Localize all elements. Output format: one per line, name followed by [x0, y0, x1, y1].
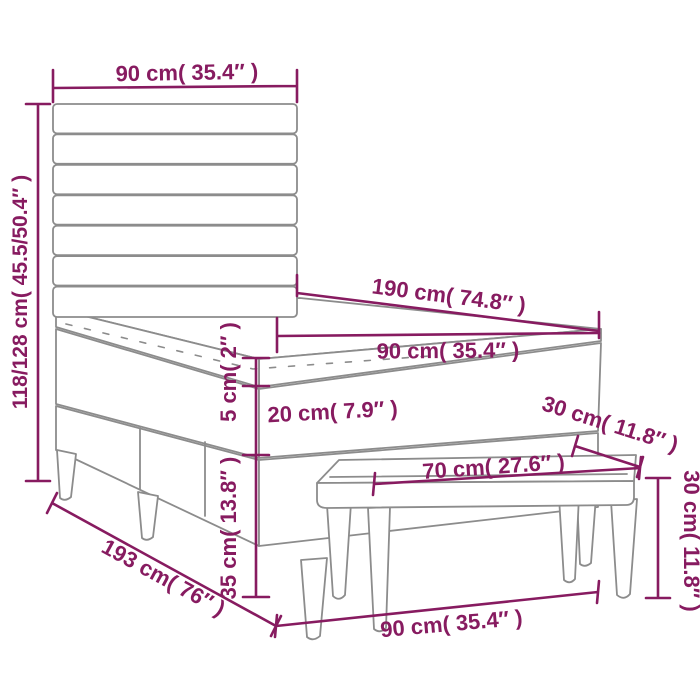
headboard-slat: [53, 165, 297, 194]
headboard: [53, 104, 297, 317]
bed-width-label: 90 cm( 35.4″ ): [379, 605, 523, 642]
topper-height-label: 5 cm( 2″ ): [216, 322, 241, 422]
bed-leg-mid-left: [138, 492, 158, 540]
headboard-width-label: 90 cm( 35.4″ ): [115, 59, 258, 86]
headboard-slat: [53, 134, 297, 163]
bed-leg-front: [301, 558, 327, 639]
headboard-slat: [53, 226, 297, 255]
bench-height-label: 30 cm( 11.8″ ): [679, 470, 700, 611]
dim-line-bench-height: [646, 478, 670, 598]
bench-seat-front: [317, 481, 634, 508]
headboard-slat: [53, 195, 297, 224]
bed-dimensions-diagram: 90 cm( 35.4″ ) 118/128 cm( 45.5/50.4″ ) …: [0, 0, 700, 700]
bench-leg-back-right: [559, 496, 579, 582]
bed-leg-right: [577, 496, 596, 566]
headboard-slat: [53, 104, 297, 133]
headboard-slat: [53, 256, 297, 285]
total-height-label: 118/128 cm( 45.5/50.4″ ): [9, 175, 32, 409]
mattress-width-label: 90 cm( 35.4″ ): [377, 337, 520, 363]
diagram-svg: 90 cm( 35.4″ ) 118/128 cm( 45.5/50.4″ ) …: [0, 0, 700, 700]
bed-total-length-label: 193 cm( 76″ ): [98, 534, 230, 621]
bench-leg-front-left: [327, 503, 351, 599]
bench-leg-back-left: [368, 507, 390, 631]
bench-leg-front-right: [611, 499, 637, 598]
base-height-label: 35 cm( 13.8″ ): [216, 457, 241, 600]
bed-leg-far-left: [57, 450, 76, 500]
headboard-slat: [53, 287, 297, 317]
